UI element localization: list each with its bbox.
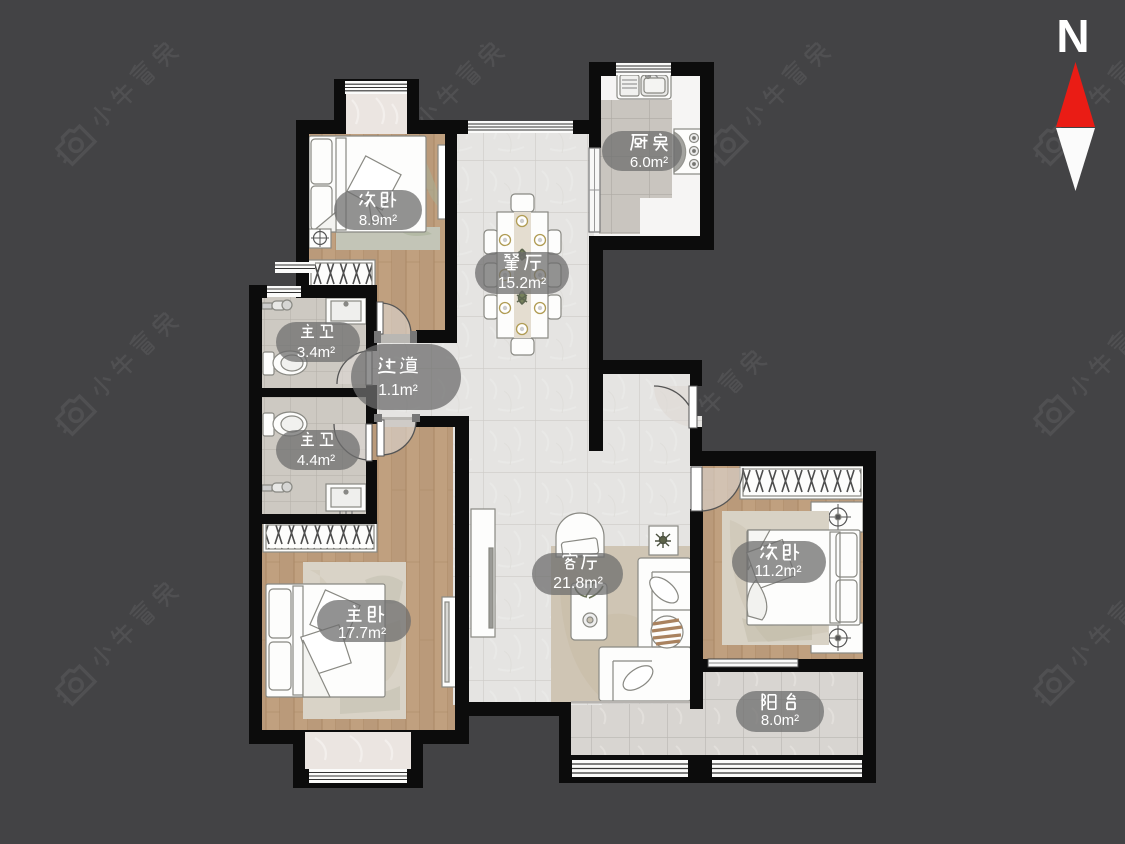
svg-text:N: N: [1056, 10, 1089, 62]
svg-text:8.9m²: 8.9m²: [359, 212, 397, 229]
svg-text:4.4m²: 4.4m²: [297, 452, 335, 469]
svg-text:6.0m²: 6.0m²: [630, 154, 668, 171]
svg-text:1.1m²: 1.1m²: [378, 382, 418, 399]
svg-text:3.4m²: 3.4m²: [297, 344, 335, 361]
svg-text:21.8m²: 21.8m²: [553, 575, 603, 592]
svg-text:8.0m²: 8.0m²: [761, 712, 799, 729]
svg-text:15.2m²: 15.2m²: [498, 275, 546, 292]
svg-text:17.7m²: 17.7m²: [338, 625, 386, 642]
svg-text:11.2m²: 11.2m²: [754, 563, 801, 580]
